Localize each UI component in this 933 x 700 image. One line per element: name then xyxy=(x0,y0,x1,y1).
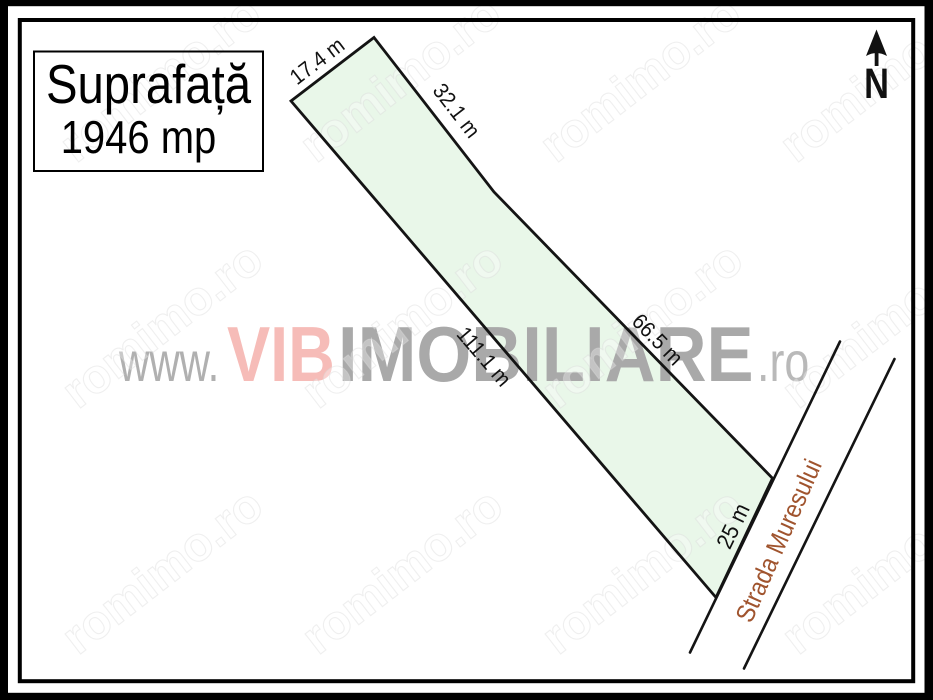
svg-text:1946 mp: 1946 mp xyxy=(61,112,217,163)
svg-text:Suprafață: Suprafață xyxy=(46,54,252,115)
svg-text:N: N xyxy=(864,60,889,107)
